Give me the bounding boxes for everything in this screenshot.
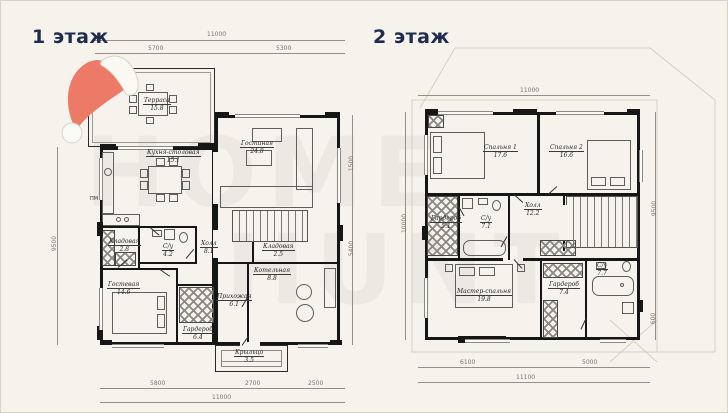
wardrobe-shelves: [543, 263, 583, 278]
wall-pier: [425, 109, 438, 115]
wall-pier: [325, 112, 340, 118]
wall-pier: [100, 340, 112, 345]
room-label: Кладовая 2.8: [108, 238, 141, 254]
room-label: Холл 8.1: [200, 240, 218, 256]
wall-pier: [198, 143, 216, 150]
wall: [425, 258, 503, 261]
appliance-note: ПМ: [90, 196, 98, 202]
washing-machine: [164, 229, 175, 240]
wardrobe-shelves: [543, 300, 558, 338]
floorplan-sheet: HOME HUNT 1 этаж 2 этаж: [0, 0, 728, 413]
hob-burner: [124, 217, 129, 222]
window: [424, 135, 428, 175]
room-label: Гостиная 24.8: [240, 140, 274, 156]
dimension-value: 5400: [348, 241, 355, 256]
room-label: Кухня-столовая 15.1: [146, 149, 201, 165]
wall: [215, 262, 340, 264]
dimension-value: 11000: [212, 394, 231, 401]
boiler-tank: [296, 304, 314, 322]
room-label: Гардероб 5.1: [430, 215, 462, 231]
santa-hat-pompom: [62, 123, 82, 143]
dimension-value: 11100: [516, 374, 535, 381]
room-label: Спальня 1 17.6: [483, 144, 518, 160]
room-label: Прихожая 6.1: [216, 293, 252, 309]
room-label: Кладовая 2.5: [262, 243, 295, 259]
room-label: Крыльцо 3.5: [234, 349, 264, 365]
boiler-unit: [324, 268, 336, 308]
chair: [140, 169, 148, 178]
dimension-line: [418, 367, 650, 368]
dimension-value: 5000: [582, 359, 597, 366]
pillow: [610, 177, 625, 186]
dimension-value: 2500: [308, 380, 323, 387]
chair: [182, 181, 190, 190]
wall-pier: [627, 109, 640, 115]
room-label: Холл 12.2: [524, 202, 542, 218]
washing-machine: [622, 302, 634, 314]
sofa-chaise: [296, 128, 313, 190]
floor1-title: 1 этаж: [32, 26, 109, 48]
dining-table: [148, 166, 182, 194]
chair: [156, 194, 165, 202]
wall: [176, 268, 178, 345]
dimension-value: 11000: [520, 87, 539, 94]
dimension-value: 6100: [460, 359, 475, 366]
wall-pier: [513, 109, 537, 115]
wall: [537, 112, 540, 193]
toilet: [622, 261, 631, 272]
wall-pier: [330, 340, 342, 345]
closet-shelves: [428, 115, 444, 128]
wall: [140, 262, 197, 264]
dimension-line: [100, 388, 345, 389]
wall: [195, 226, 197, 264]
room-label: Спальня 2 16.6: [549, 144, 584, 160]
window: [298, 344, 328, 348]
dimension-value: 5700: [148, 45, 163, 52]
pillow: [591, 177, 606, 186]
window: [337, 148, 341, 203]
room-label: Гардероб 6.4: [182, 326, 214, 342]
room-label: Гардероб 7.4: [548, 281, 580, 297]
dimension-line: [352, 115, 353, 345]
wall: [178, 284, 215, 286]
dimension-value: 5800: [150, 380, 165, 387]
wall-pier: [422, 226, 428, 240]
dimension-value: 1500: [348, 156, 355, 171]
nightstand: [445, 264, 453, 272]
wall: [585, 261, 587, 340]
floor2-title: 2 этаж: [373, 26, 450, 48]
washing-machine: [462, 198, 473, 209]
dimension-value: 11000: [207, 31, 226, 38]
dimension-value: 9500: [651, 201, 658, 216]
room-label: Мастер-спальня 19.8: [456, 288, 512, 304]
room-label: Котельная 8.8: [253, 267, 291, 283]
window: [424, 278, 428, 318]
window: [465, 339, 510, 343]
window: [99, 288, 103, 330]
hob-burner: [116, 217, 121, 222]
dimension-value: 600: [650, 313, 657, 324]
dimension-value: 9500: [51, 236, 58, 251]
pillow: [479, 267, 495, 276]
pillow: [433, 157, 442, 174]
bathtub-drain: [620, 283, 624, 287]
room-label: Гостевая 14.6: [107, 281, 140, 297]
kitchen-sink: [104, 168, 112, 176]
dimension-line: [95, 40, 345, 41]
window: [600, 339, 626, 343]
pillow: [157, 296, 165, 310]
pillow: [433, 136, 442, 153]
window: [438, 111, 493, 115]
kitchen-counter: [102, 214, 140, 226]
santa-hat: [57, 50, 149, 146]
window: [99, 158, 103, 200]
opening: [213, 152, 219, 204]
bathtub: [463, 240, 506, 256]
kitchen-counter: [102, 152, 114, 214]
dimension-line: [418, 382, 650, 383]
wall: [540, 261, 542, 340]
dimension-line: [418, 95, 650, 96]
window: [639, 150, 643, 182]
chair: [169, 194, 178, 202]
boiler-tank: [296, 284, 312, 300]
room-label: С/у 7.1: [480, 215, 492, 231]
window: [556, 111, 604, 115]
bathtub: [592, 276, 634, 296]
toilet: [179, 232, 188, 243]
room-label: С/у 7.7: [596, 262, 608, 278]
dimension-value: 2700: [245, 380, 260, 387]
window: [112, 344, 164, 348]
dimension-line: [655, 112, 656, 340]
wall: [252, 242, 254, 262]
staircase: [232, 210, 308, 242]
dimension-value: 10000: [401, 214, 408, 233]
wall-pier: [337, 225, 343, 241]
wall: [508, 196, 510, 260]
staircase: [566, 196, 638, 248]
wardrobe-shelves: [179, 287, 214, 323]
wall: [100, 268, 178, 270]
toilet: [492, 200, 501, 211]
room-label: С/у 4.2: [162, 243, 174, 259]
bathroom-sink: [478, 198, 488, 205]
sofa: [220, 186, 313, 208]
opening: [562, 205, 568, 240]
wall-pier: [637, 300, 643, 312]
window: [235, 114, 300, 118]
chair: [182, 169, 190, 178]
dimension-line: [100, 402, 345, 403]
chair: [140, 181, 148, 190]
pillow: [459, 267, 475, 276]
wall-pier: [97, 222, 103, 236]
pillow: [157, 314, 165, 328]
dimension-value: 5300: [276, 45, 291, 52]
wall-pier: [215, 112, 229, 118]
